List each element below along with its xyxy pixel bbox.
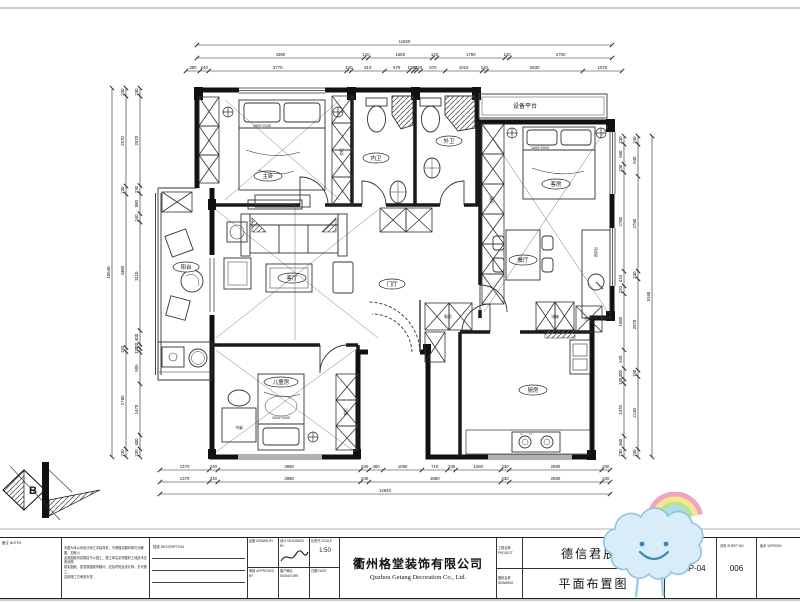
scale-cell: 比例尺 SCALE 1:50 xyxy=(310,538,340,568)
cabinet-box-cross xyxy=(482,154,504,184)
dim-chain-right-2: 9160 xyxy=(646,134,654,459)
equipment-platform xyxy=(479,94,607,118)
dim-label: 230 xyxy=(618,164,623,172)
dim-label: 1790 xyxy=(466,52,476,57)
dim-label: 120 xyxy=(504,52,512,57)
dim-label: 2580 xyxy=(551,476,561,481)
project-labels-cell: 工程名称 PROJECT 图纸名称 DRAWING xyxy=(497,538,523,598)
washer-label: 洗衣机 xyxy=(584,316,594,321)
cabinet-box-cross xyxy=(406,208,432,232)
dim-label: 2780 xyxy=(618,216,623,226)
cabinet-box-cross xyxy=(332,123,353,150)
fridge-label: 冰箱 xyxy=(551,314,559,319)
signature-cell: 客户确认 SIGNATURE xyxy=(279,568,310,598)
notes-cell: 备注 NOTES xyxy=(0,538,62,598)
dim-label: 910 xyxy=(364,65,372,70)
dim-label: 230 xyxy=(632,449,637,457)
dim-chain-left-2: 10540 xyxy=(106,86,114,459)
notes-line-1: 本图为本公司设计师之手绘风采，不得随意翻印拷贝分解图，如有以 xyxy=(64,546,147,556)
dim-chain-left-0: 2302570230580240311040012011090514704002… xyxy=(134,86,142,459)
dim-label: 2780 xyxy=(120,395,125,405)
west-kitchen-label: 西厨台 xyxy=(593,246,598,257)
room-label-dining: 餐厅 xyxy=(517,256,529,264)
dim-label: 230 xyxy=(361,476,369,481)
dim-label: 10540 xyxy=(106,266,111,279)
company-cell: 衢州格堂装饰有限公司 Quzhou Getang Decoration Co.,… xyxy=(340,538,497,598)
dim-label: 230 xyxy=(602,476,610,481)
wardrobe-label-1: 衣柜 xyxy=(339,148,344,156)
company-name-en: Quzhou Getang Decoration Co., Ltd. xyxy=(370,574,466,581)
laundry-counter xyxy=(158,342,212,380)
dim-label: 230 xyxy=(134,449,139,457)
dim-label: 240 xyxy=(210,464,218,469)
dim-label: 12540 xyxy=(379,488,392,493)
designed-by-cell: 设计 DESIGNED BY xyxy=(279,538,310,568)
dim-label: 120 xyxy=(431,52,439,57)
dim-label: 230 xyxy=(618,136,623,144)
dim-label: 3770 xyxy=(273,65,283,70)
dim-label: 3980 xyxy=(284,464,294,469)
cabinet-box-cross xyxy=(449,303,472,330)
dim-label: 240 xyxy=(134,214,139,222)
dim-label: 400 xyxy=(372,464,380,469)
scale-value: 1:50 xyxy=(311,547,339,556)
dim-label: 905 xyxy=(134,364,139,372)
notes-line-4: 否则施工方承担责任。 xyxy=(64,575,147,580)
dim-label: 120 xyxy=(415,65,423,70)
cabinet-box-cross xyxy=(199,126,219,155)
dim-label: 2630 xyxy=(530,65,540,70)
room-label-guest: 客房 xyxy=(550,180,562,188)
desk-label: 书桌 xyxy=(235,425,243,430)
dim-label: 120 xyxy=(481,65,489,70)
dim-label: 3680 xyxy=(430,476,440,481)
dim-label: 9160 xyxy=(646,291,651,301)
dim-label: 120 xyxy=(120,345,125,353)
dim-chain-bottom-2: 12540 xyxy=(158,488,612,496)
dim-label: 1580 xyxy=(618,316,623,326)
side-table xyxy=(224,222,251,289)
dim-label: 230 xyxy=(120,186,125,194)
dim-chain-bottom-0: 1370240398023040010807102301260230258023… xyxy=(158,464,612,472)
dim-label: 670 xyxy=(393,65,401,70)
corridor-cabinet xyxy=(545,330,575,338)
dim-label: 2700 xyxy=(556,52,566,57)
description-label: 描述 DESCRIPTION xyxy=(153,544,184,549)
notes-line-3: 核实图纸，如发现图纸有疑问，应及时知会设计师，方可施工， xyxy=(64,565,147,575)
dim-label: 2570 xyxy=(134,135,139,145)
cabinet-box-cross xyxy=(336,374,358,400)
dim-label: 400 xyxy=(134,333,139,341)
room-label-balcony: 阳台 xyxy=(180,263,192,271)
dim-label: 1080 xyxy=(398,464,408,469)
dim-label: 11920 xyxy=(399,39,411,44)
room-label-bath-outer: 外卫 xyxy=(443,137,455,145)
dim-chain-bottom-1: 1370240398023036802302580230 xyxy=(158,476,612,484)
master-bed xyxy=(239,100,325,207)
sheet-no-label: 页码 SHEET NO. xyxy=(720,544,744,549)
guest-bed xyxy=(523,127,595,199)
cloud-eye-left xyxy=(640,542,645,547)
dim-chain-right-0: 2305602302780410220158052030013014703602… xyxy=(618,134,626,459)
dim-label: 240 xyxy=(632,136,637,144)
dim-label: 120 xyxy=(345,65,353,70)
room-label-kitchen: 厨房 xyxy=(527,386,539,394)
armchair xyxy=(333,262,353,293)
dim-chain-top-1: 4390120168012017901202700 xyxy=(195,52,614,60)
dim-label: 560 xyxy=(618,150,623,158)
dim-label: 1370 xyxy=(180,464,190,469)
room-label-foyer: 门厅 xyxy=(386,280,398,288)
room-label-master: 主卧 xyxy=(262,172,274,180)
wardrobe-label-2: 衣柜 xyxy=(489,196,494,204)
dim-label: 360 xyxy=(618,438,623,446)
columns xyxy=(194,87,615,460)
version-cell: 版本 VERSION xyxy=(757,538,800,598)
tv-cabinet xyxy=(248,200,302,209)
west-kitchen-counter xyxy=(582,230,610,318)
room-label-bath-inner: 内卫 xyxy=(370,154,382,162)
master-bed-size: 1800*2100 xyxy=(253,124,271,128)
dim-label: 230 xyxy=(501,476,509,481)
dim-label: 230 xyxy=(134,88,139,96)
dim-label: 3980 xyxy=(284,476,294,481)
cabinet-box-cross xyxy=(332,177,353,205)
dim-label: 2670 xyxy=(632,319,637,329)
dim-label: 230 xyxy=(120,88,125,96)
dim-label: 2130 xyxy=(632,407,637,417)
version-label: 版本 VERSION xyxy=(760,544,782,549)
dim-label: 3110 xyxy=(134,271,139,281)
dim-label: 1260 xyxy=(474,464,484,469)
dim-label: 4380 xyxy=(120,265,125,275)
dim-label: 2780 xyxy=(632,218,637,228)
dim-label: 230 xyxy=(602,464,610,469)
room-labels: 主卧 内卫 外卫 客房 餐厅 门厅 客厅 阳台 儿童房 厨房 设备平台 xyxy=(173,102,570,395)
dim-label: 940 xyxy=(632,156,637,164)
balcony-windows xyxy=(156,188,215,380)
cabinet-box-cross xyxy=(380,208,406,232)
room-label-kids: 儿童房 xyxy=(273,378,290,386)
dim-label: 2580 xyxy=(551,464,561,469)
dim-label: 230 xyxy=(618,449,623,457)
room-label-equipment: 设备平台 xyxy=(513,102,537,110)
dim-label: 190 xyxy=(632,369,637,377)
dim-label: 4390 xyxy=(276,52,286,57)
kitchen-fixtures xyxy=(466,340,590,454)
cabinet-box-cross xyxy=(162,192,192,212)
date-cell: 日期 DATE xyxy=(310,568,340,598)
cabinet-box-cross xyxy=(199,97,219,126)
dim-label: 1470 xyxy=(618,404,623,414)
cabinet-box-cross xyxy=(199,155,219,183)
cloud-sticker xyxy=(590,492,710,602)
company-name-cn: 衢州格堂装饰有限公司 xyxy=(353,555,483,572)
guest-bed-size: 1800*2000 xyxy=(531,146,549,150)
notes-text-cell: 本图为本公司设计师之手绘风采，不得随意翻印拷贝分解图，如有以 此类图纸内容擅自予… xyxy=(62,538,150,598)
bath-outer-fixtures xyxy=(420,96,475,178)
dim-label: 1680 xyxy=(396,52,406,57)
dim-label: 2570 xyxy=(120,136,125,146)
dim-label: 110 xyxy=(134,346,139,353)
dim-label: 410 xyxy=(618,274,623,282)
description-cell: 描述 DESCRIPTION xyxy=(150,538,248,598)
room-label-living: 客厅 xyxy=(286,274,298,282)
dim-chain-right-1: 240940278023026701902130230 xyxy=(632,134,640,459)
drawn-by-cell: 绘图 DRAWN BY xyxy=(248,538,279,568)
cloud-icon xyxy=(604,508,703,596)
shoe-cabinet-label: 鞋柜 xyxy=(444,314,452,319)
designer-signature xyxy=(279,549,309,565)
dim-label: 300 xyxy=(618,370,623,378)
sofa xyxy=(241,214,347,256)
dim-label: 400 xyxy=(134,438,139,446)
dim-label: 1470 xyxy=(134,404,139,414)
dim-label: 1070 xyxy=(598,65,608,70)
dim-label: 230 xyxy=(448,464,456,469)
dim-label: 240 xyxy=(201,65,209,70)
floor-diagonals xyxy=(216,100,608,452)
bath-inner-fixtures xyxy=(366,96,413,203)
sheet-no-cell: 页码 SHEET NO. 006 xyxy=(717,538,757,598)
kids-bed-size: 1500*2000 xyxy=(272,416,290,420)
north-arrow: B xyxy=(3,462,100,520)
dim-label: 520 xyxy=(618,355,623,363)
cloud-legs xyxy=(636,578,663,596)
dim-label: 580 xyxy=(134,199,139,207)
notes-label: 备注 NOTES xyxy=(2,540,21,545)
approved-by-cell: 审核 APPROVED BY xyxy=(248,568,279,598)
dim-label: 380 xyxy=(189,65,197,70)
dim-label: 230 xyxy=(134,185,139,193)
dim-chain-left-1: 230257023043801202780230 xyxy=(120,86,128,459)
dim-label: 130 xyxy=(618,377,623,385)
dim-label: 230 xyxy=(361,464,369,469)
dim-label: 220 xyxy=(618,286,623,294)
dim-label: 710 xyxy=(431,464,439,469)
dim-label: 230 xyxy=(632,271,637,279)
dim-label: 1010 xyxy=(459,65,469,70)
balcony-furniture xyxy=(165,229,203,320)
project-label: 工程名称 PROJECT xyxy=(498,546,522,556)
notes-line-2: 此类图纸内容擅自予以施工，施工单位必须做好工地技术交底对照 xyxy=(64,556,147,566)
approval-grid: 绘图 DRAWN BY 设计 DESIGNED BY 比例尺 SCALE 1:5… xyxy=(248,538,340,598)
wardrobe-label-3: 衣柜 xyxy=(343,408,348,416)
drawing-label: 图纸名称 DRAWING xyxy=(498,576,522,586)
dim-chain-top-0: 11920 xyxy=(195,39,614,47)
dim-label: 120 xyxy=(363,52,371,57)
cabinet-box-cross xyxy=(482,274,504,304)
dim-label: 230 xyxy=(501,464,509,469)
kids-desk xyxy=(222,390,256,442)
dim-chain-top-2: 3802403770120910670120801206701010120263… xyxy=(184,65,624,73)
dim-label: 240 xyxy=(210,476,218,481)
dim-label: 230 xyxy=(120,449,125,457)
cloud-eye-right xyxy=(664,542,669,547)
dim-label: 1370 xyxy=(180,476,190,481)
dim-label: 670 xyxy=(429,65,437,70)
cabinet-box-cross xyxy=(482,124,504,154)
